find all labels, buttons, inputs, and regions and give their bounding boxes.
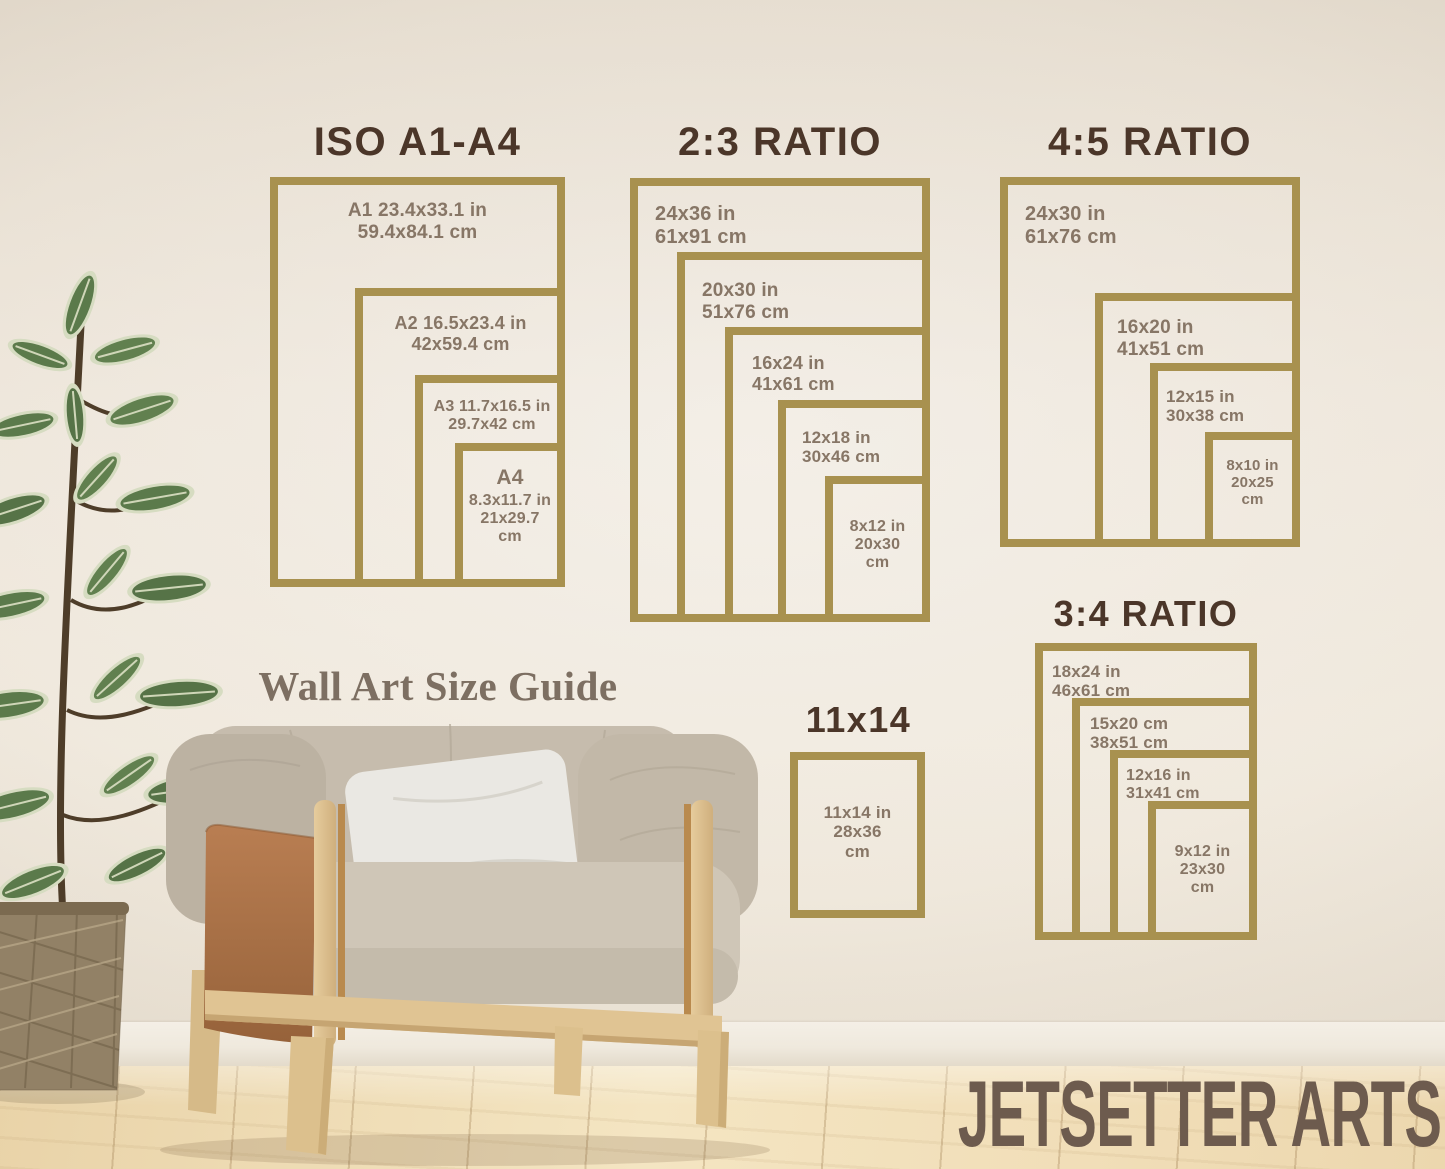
label-12x15: 12x15 in 30x38 cm (1166, 387, 1244, 426)
brand-text: JETSETTER ARTS (958, 1067, 1441, 1160)
label-20x30: 20x30 in 51x76 cm (702, 280, 789, 323)
plant-basket (0, 902, 145, 1104)
section-title-11x14: 11x14 (781, 702, 936, 738)
label-12x18: 12x18 in 30x46 cm (802, 428, 880, 467)
section-title-3-4: 3:4 RATIO (1016, 596, 1276, 632)
section-title-iso: ISO A1-A4 (270, 122, 565, 162)
label-18x24: 18x24 in 46x61 cm (1052, 662, 1130, 701)
label-15x20: 15x20 cm 38x51 cm (1090, 714, 1168, 753)
label-16x20: 16x20 in 41x51 cm (1117, 317, 1204, 360)
label-8x12: 8x12 in 20x30 cm (831, 518, 924, 573)
label-11x14: 11x14 in 28x36 cm (796, 803, 919, 861)
chair-floor-shadow (160, 1134, 770, 1166)
section-title-4-5: 4:5 RATIO (1000, 122, 1300, 162)
label-8x10: 8x10 in 20x25 cm (1209, 457, 1296, 508)
label-a2: A2 16.5x23.4 in 42x59.4 cm (368, 313, 553, 354)
label-a1: A1 23.4x33.1 in 59.4x84.1 cm (285, 200, 550, 243)
wall-art-size-guide-poster: ISO A1-A4 A1 23.4x33.1 in 59.4x84.1 cm A… (0, 0, 1445, 1169)
label-24x36: 24x36 in 61x91 cm (655, 203, 747, 249)
label-12x16: 12x16 in 31x41 cm (1126, 767, 1200, 803)
armchair-illustration (150, 700, 780, 1169)
label-16x24: 16x24 in 41x61 cm (752, 353, 835, 394)
section-title-2-3: 2:3 RATIO (630, 122, 930, 162)
label-24x30: 24x30 in 61x76 cm (1025, 203, 1117, 249)
label-9x12: 9x12 in 23x30 cm (1154, 843, 1251, 898)
label-a4: A4 8.3x11.7 in 21x29.7 cm (459, 466, 561, 547)
label-a3: A3 11.7x16.5 in 29.7x42 cm (426, 398, 558, 434)
